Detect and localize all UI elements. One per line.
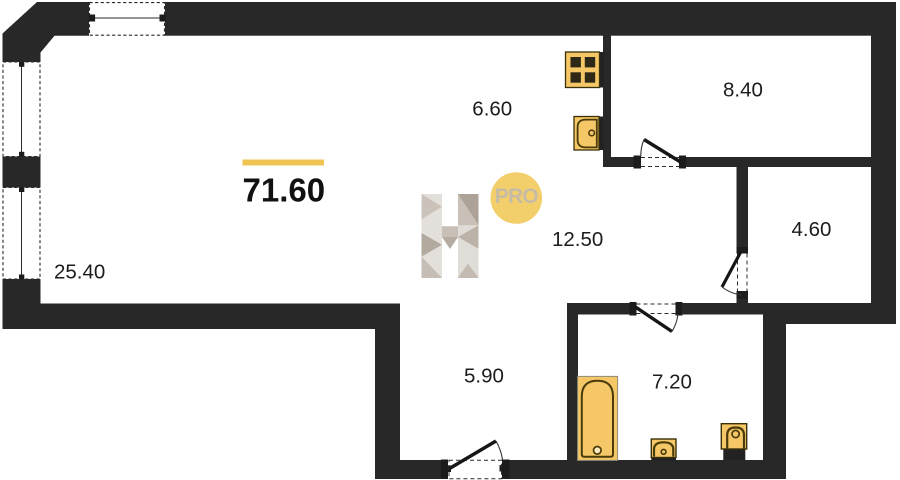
svg-text:4.60: 4.60 (792, 218, 832, 241)
svg-text:PRO: PRO (495, 185, 539, 208)
svg-text:6.60: 6.60 (472, 98, 512, 121)
svg-text:12.50: 12.50 (552, 228, 603, 251)
svg-text:5.90: 5.90 (464, 365, 504, 388)
svg-text:71.60: 71.60 (243, 172, 326, 209)
svg-text:7.20: 7.20 (652, 371, 692, 394)
svg-text:25.40: 25.40 (54, 261, 105, 284)
svg-text:8.40: 8.40 (723, 79, 763, 102)
